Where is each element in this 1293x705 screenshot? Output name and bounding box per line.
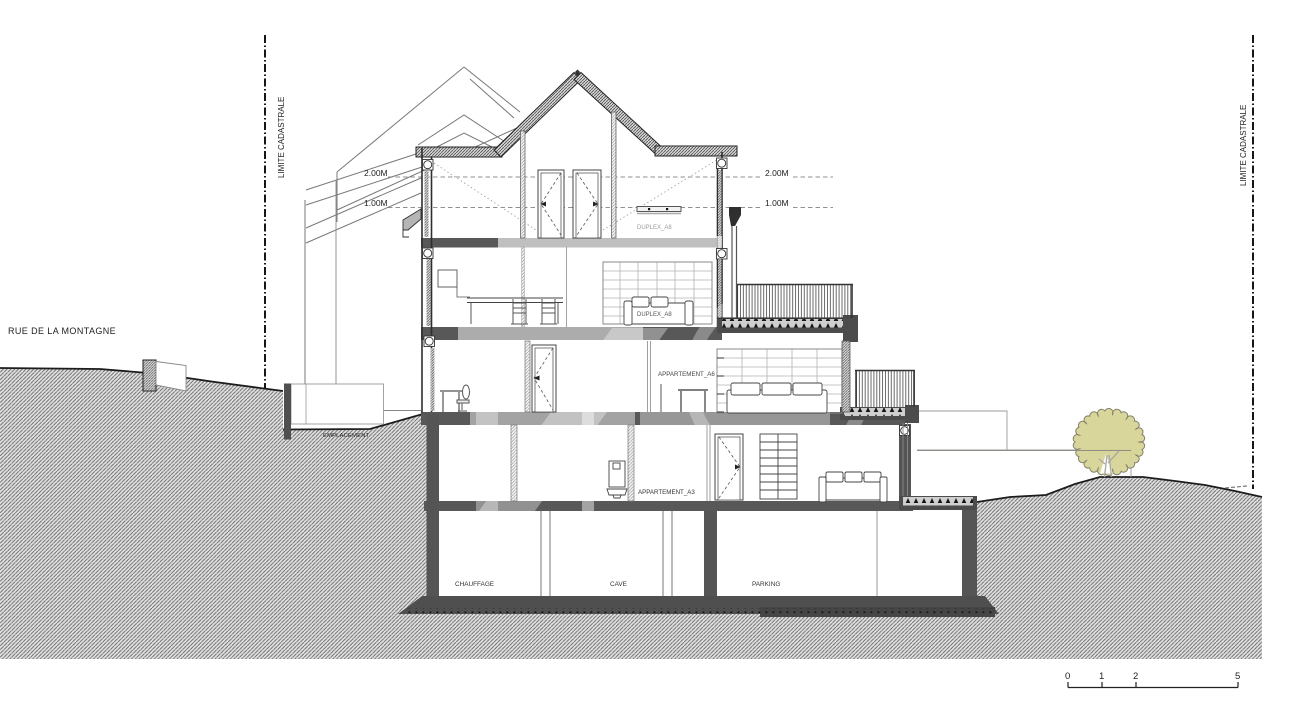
svg-text:APPARTEMENT_A6: APPARTEMENT_A6 xyxy=(658,371,715,378)
svg-text:DUPLEX_A8: DUPLEX_A8 xyxy=(637,225,672,231)
svg-text:RUE DE LA MONTAGNE: RUE DE LA MONTAGNE xyxy=(8,326,116,336)
svg-text:EMPLACEMENT: EMPLACEMENT xyxy=(323,433,370,439)
svg-text:1: 1 xyxy=(1099,671,1104,682)
svg-text:1.00M: 1.00M xyxy=(364,198,388,208)
svg-text:LIMITE CADASTRALE: LIMITE CADASTRALE xyxy=(1239,105,1248,186)
svg-text:LIMITE CADASTRALE: LIMITE CADASTRALE xyxy=(277,97,286,178)
svg-text:2: 2 xyxy=(1133,671,1138,682)
svg-text:2.00M: 2.00M xyxy=(765,168,789,178)
svg-text:0: 0 xyxy=(1065,671,1070,682)
svg-text:5: 5 xyxy=(1235,671,1240,682)
svg-text:DUPLEX_A8: DUPLEX_A8 xyxy=(637,312,672,318)
svg-text:PARKING: PARKING xyxy=(752,581,780,588)
svg-text:2.00M: 2.00M xyxy=(364,168,388,178)
svg-text:1.00M: 1.00M xyxy=(765,198,789,208)
svg-text:APPARTEMENT_A3: APPARTEMENT_A3 xyxy=(638,489,695,496)
svg-text:CHAUFFAGE: CHAUFFAGE xyxy=(455,581,494,588)
svg-text:CAVE: CAVE xyxy=(610,581,627,588)
